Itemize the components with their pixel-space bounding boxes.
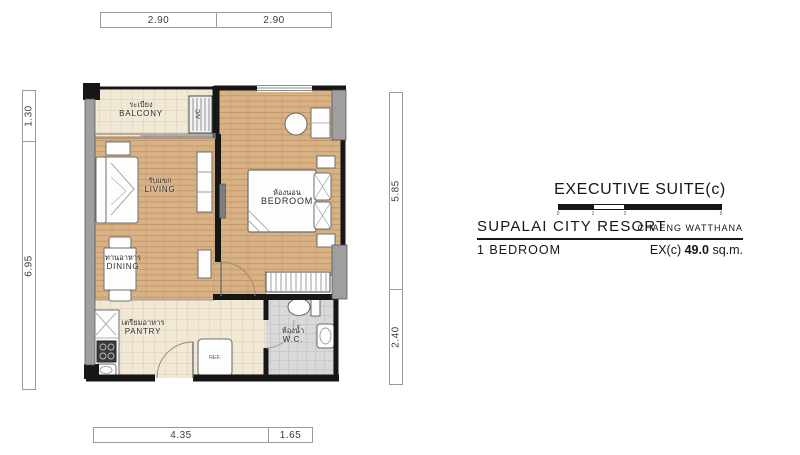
nightstand: [317, 156, 335, 168]
scale-tick: 0: [554, 211, 562, 217]
suite-title: EXECUTIVE SUITE(c): [545, 181, 735, 199]
chair: [109, 237, 131, 248]
stove: [97, 341, 116, 362]
unit-type: 1 BEDROOM: [477, 243, 561, 257]
toilet: [311, 299, 320, 316]
area-value: 49.0: [685, 243, 709, 257]
dim-right-1: 5.85: [390, 93, 402, 289]
dimension-bar-left: 1.30 6.95: [22, 90, 36, 390]
dim-left-1: 1.30: [23, 91, 35, 141]
stool: [285, 113, 307, 135]
dim-right-2: 2.40: [390, 289, 402, 384]
floor-plan-page: REF.: [0, 0, 800, 455]
aircon-unit: A/C: [189, 96, 212, 133]
side-table: [106, 142, 130, 155]
dimension-bar-bottom: 4.35 1.65: [93, 427, 313, 443]
bedroom-label: ห้องนอน BEDROOM: [261, 188, 313, 206]
room-pantry: [95, 300, 266, 378]
refrigerator-label: REF.: [209, 355, 221, 361]
scale-bar: 0 1 2 5: [558, 204, 722, 210]
dimension-bar-top: 2.90 2.90: [100, 12, 332, 28]
chair: [109, 290, 131, 301]
wc-label: ห้องน้ำ W.C.: [282, 326, 304, 344]
dim-top-1: 2.90: [101, 13, 216, 27]
living-label: รับแขก LIVING: [144, 176, 175, 194]
pantry-label: เตรียมอาหาร PANTRY: [122, 318, 165, 336]
tv: [220, 184, 226, 218]
scale-tick: 1: [589, 211, 597, 217]
title-divider: [477, 238, 743, 240]
unit-area: EX(c) 49.0 sq.m.: [650, 243, 743, 257]
aircon-label: A/C: [196, 108, 202, 119]
tv-cabinet: [197, 152, 212, 212]
low-cabinet: [198, 250, 211, 278]
dim-left-2: 6.95: [23, 141, 35, 389]
dining-label: ทานอาหาร DINING: [105, 253, 141, 271]
balcony-label: ระเบียง BALCONY: [119, 100, 163, 118]
scale-tick: 5: [717, 211, 725, 217]
dim-bottom-2: 1.65: [268, 428, 312, 442]
project-location: CHAENG WATTHANA: [637, 223, 743, 233]
scale-tick: 2: [621, 211, 629, 217]
dim-top-2: 2.90: [216, 13, 331, 27]
dimension-bar-right: 5.85 2.40: [389, 92, 403, 385]
dim-bottom-1: 4.35: [94, 428, 268, 442]
